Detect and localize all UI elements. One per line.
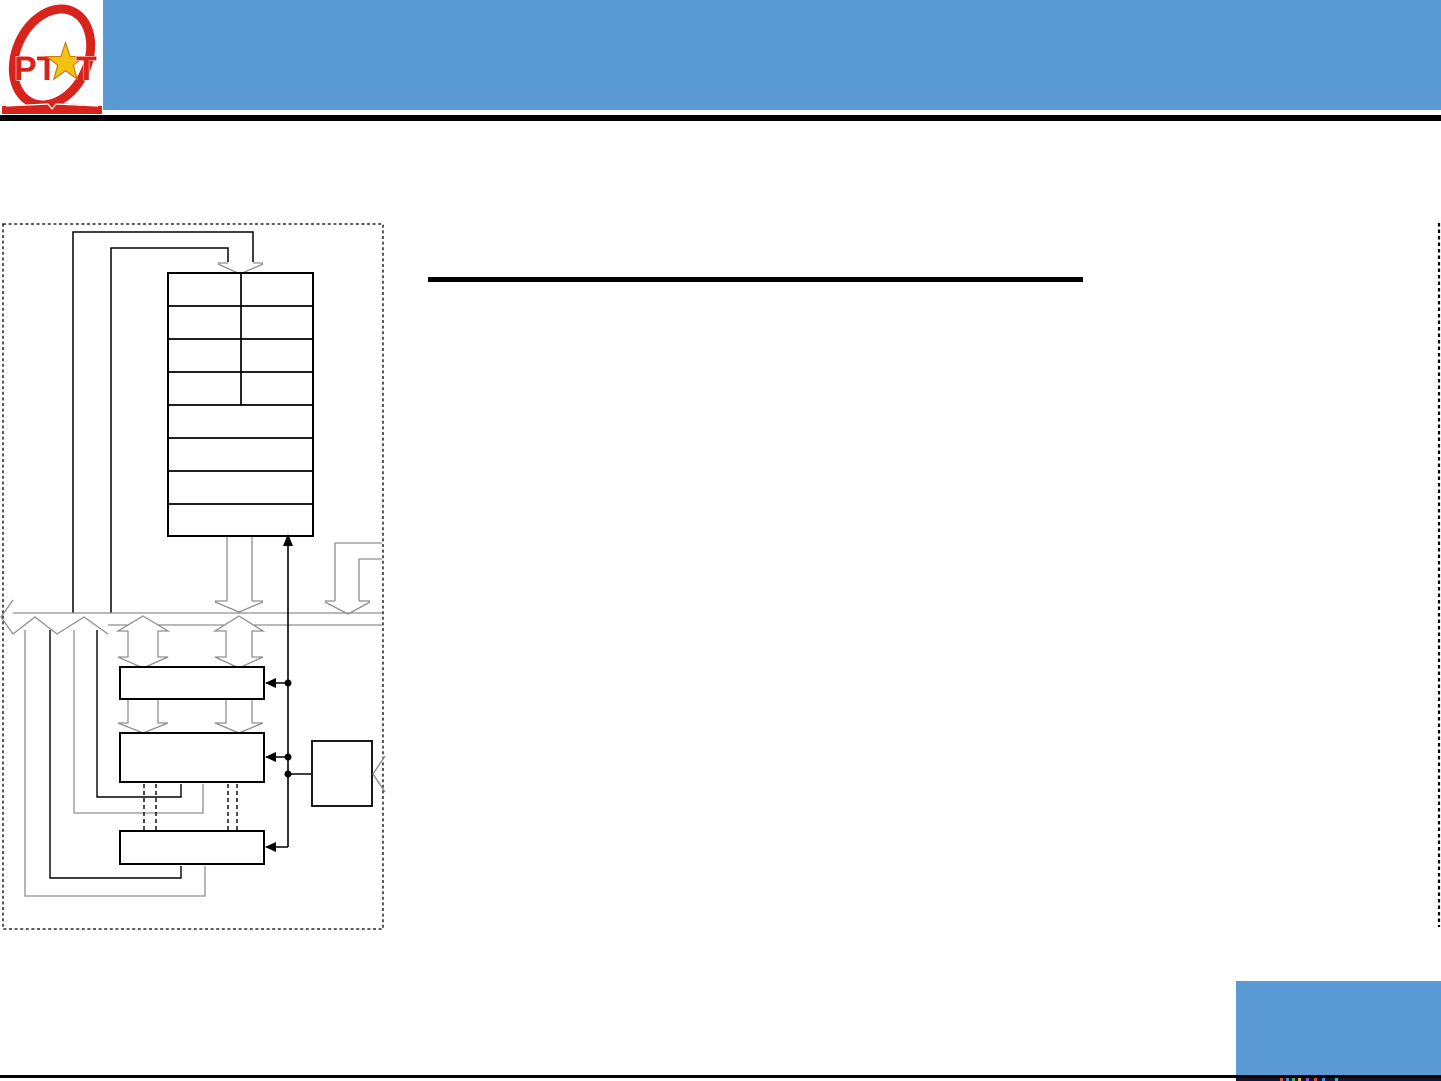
box1-box2-arrow-right [215,699,263,733]
arrowhead-into-box3 [265,842,276,852]
accent-box [1236,981,1441,1081]
block-box-2 [120,733,264,782]
slide-root: { "slide": { "logo": { "part1": "PT", "p… [0,0,1441,1081]
internal-bus-arrow [1,600,382,634]
arrowhead-into-box1 [265,678,276,688]
bus-box1-double-arrow-left [118,616,168,668]
cpu-diagram [0,0,1441,1081]
junction-dot-2 [285,754,292,761]
box1-box2-arrow-left [118,699,168,733]
block-box-1 [120,667,264,699]
bus-box1-double-arrow-right [215,616,263,668]
junction-dot-1 [285,680,292,687]
arrowhead-into-box2 [265,752,276,762]
control-box [312,741,372,806]
control-feedback-line [265,534,311,852]
bus-up-arrowheads [13,617,108,634]
register-table [168,273,313,536]
bottom-rule [0,1075,1441,1078]
table-to-bus-arrow [215,537,263,612]
right-bent-arrow-into-bus [325,543,382,614]
junction-dot-3 [285,771,292,778]
block-box-3 [120,831,264,864]
